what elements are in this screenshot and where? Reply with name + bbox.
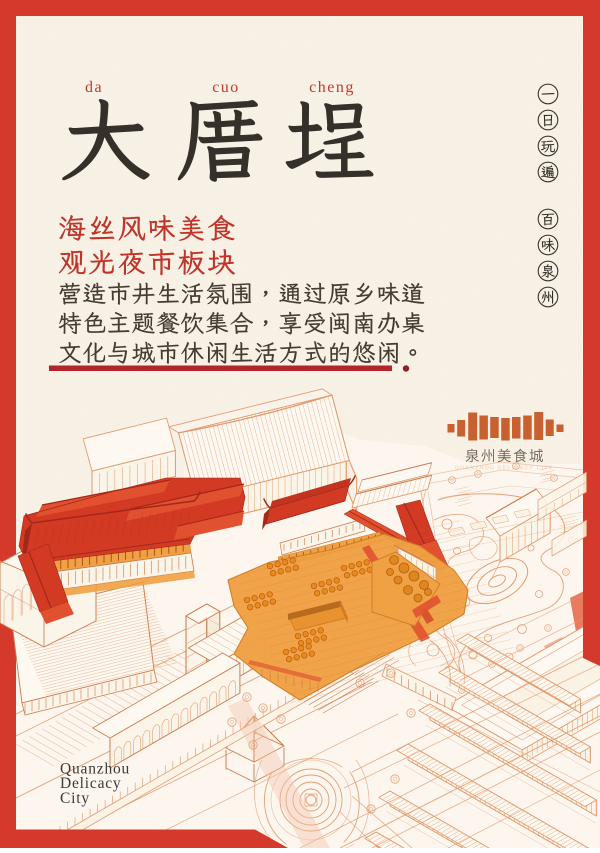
svg-text:City: City: [60, 790, 90, 807]
svg-text:cuo: cuo: [212, 79, 240, 96]
svg-text:da: da: [85, 79, 103, 96]
svg-text:cheng: cheng: [309, 79, 355, 96]
